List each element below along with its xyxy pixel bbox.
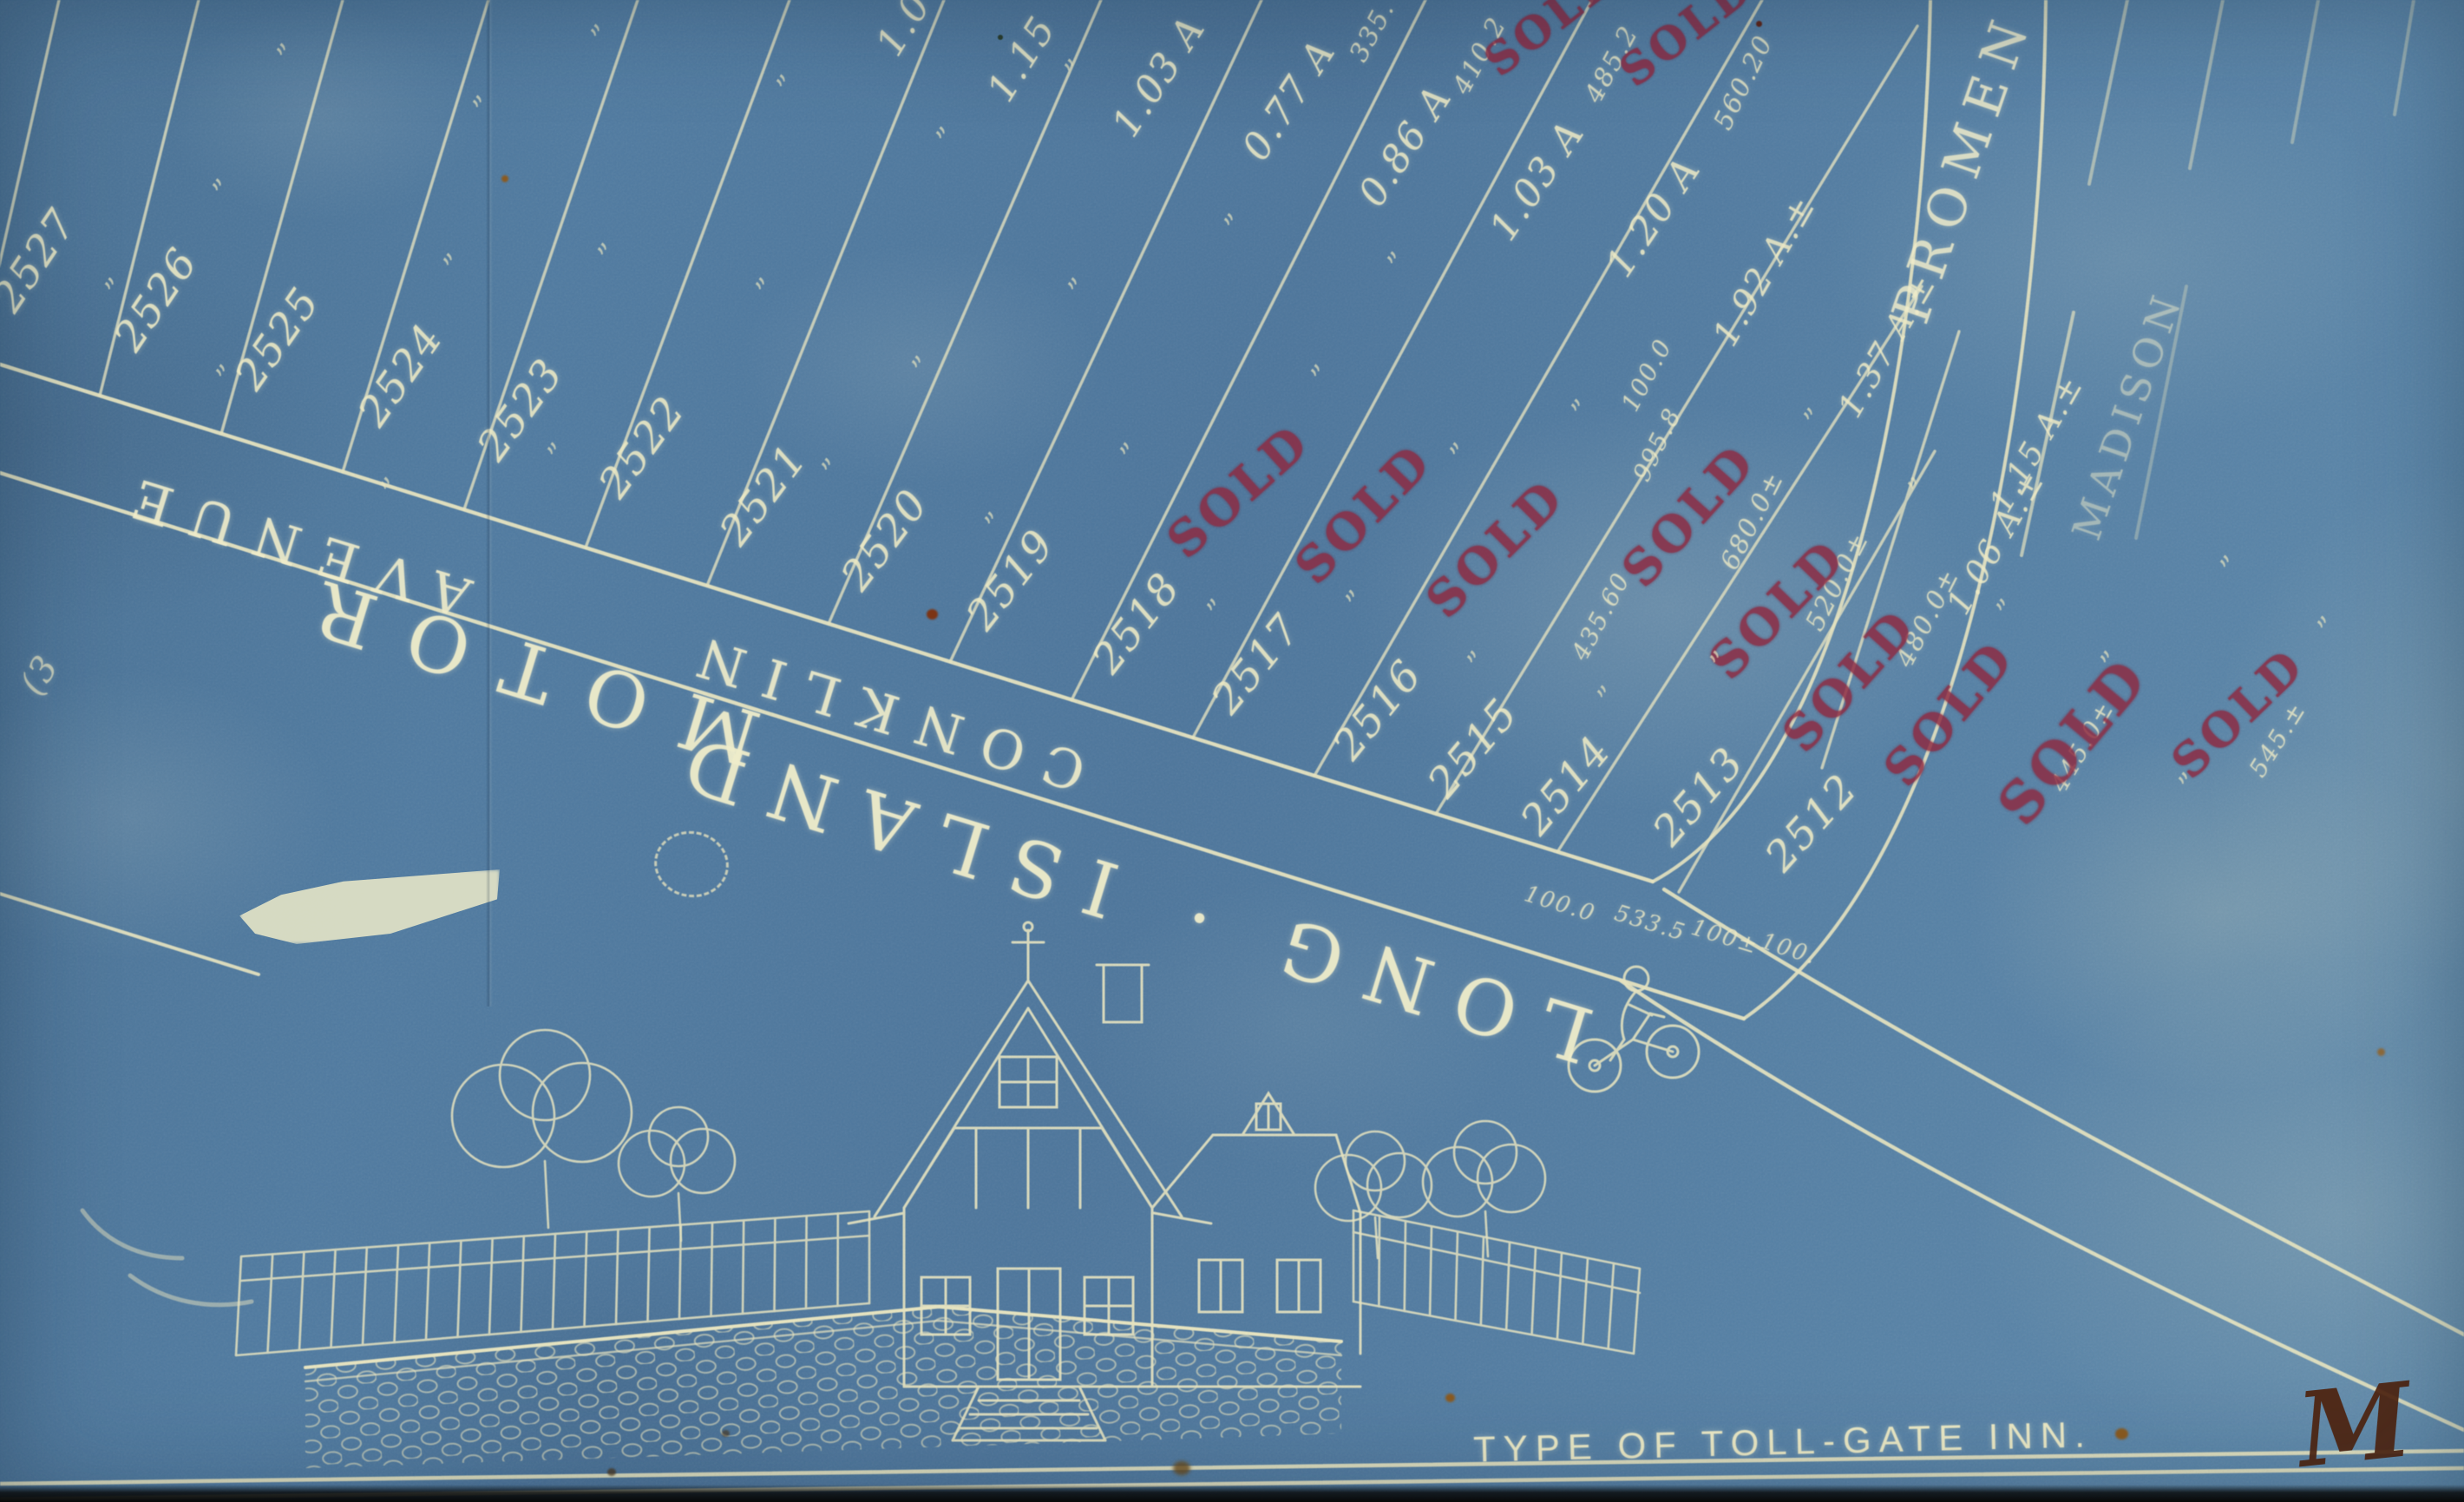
scan-edge: [0, 1485, 2464, 1502]
monogram-m: M: [2292, 1359, 2417, 1491]
blueprint-map: 2527252625252524252325222521252025192518…: [0, 0, 2464, 1502]
